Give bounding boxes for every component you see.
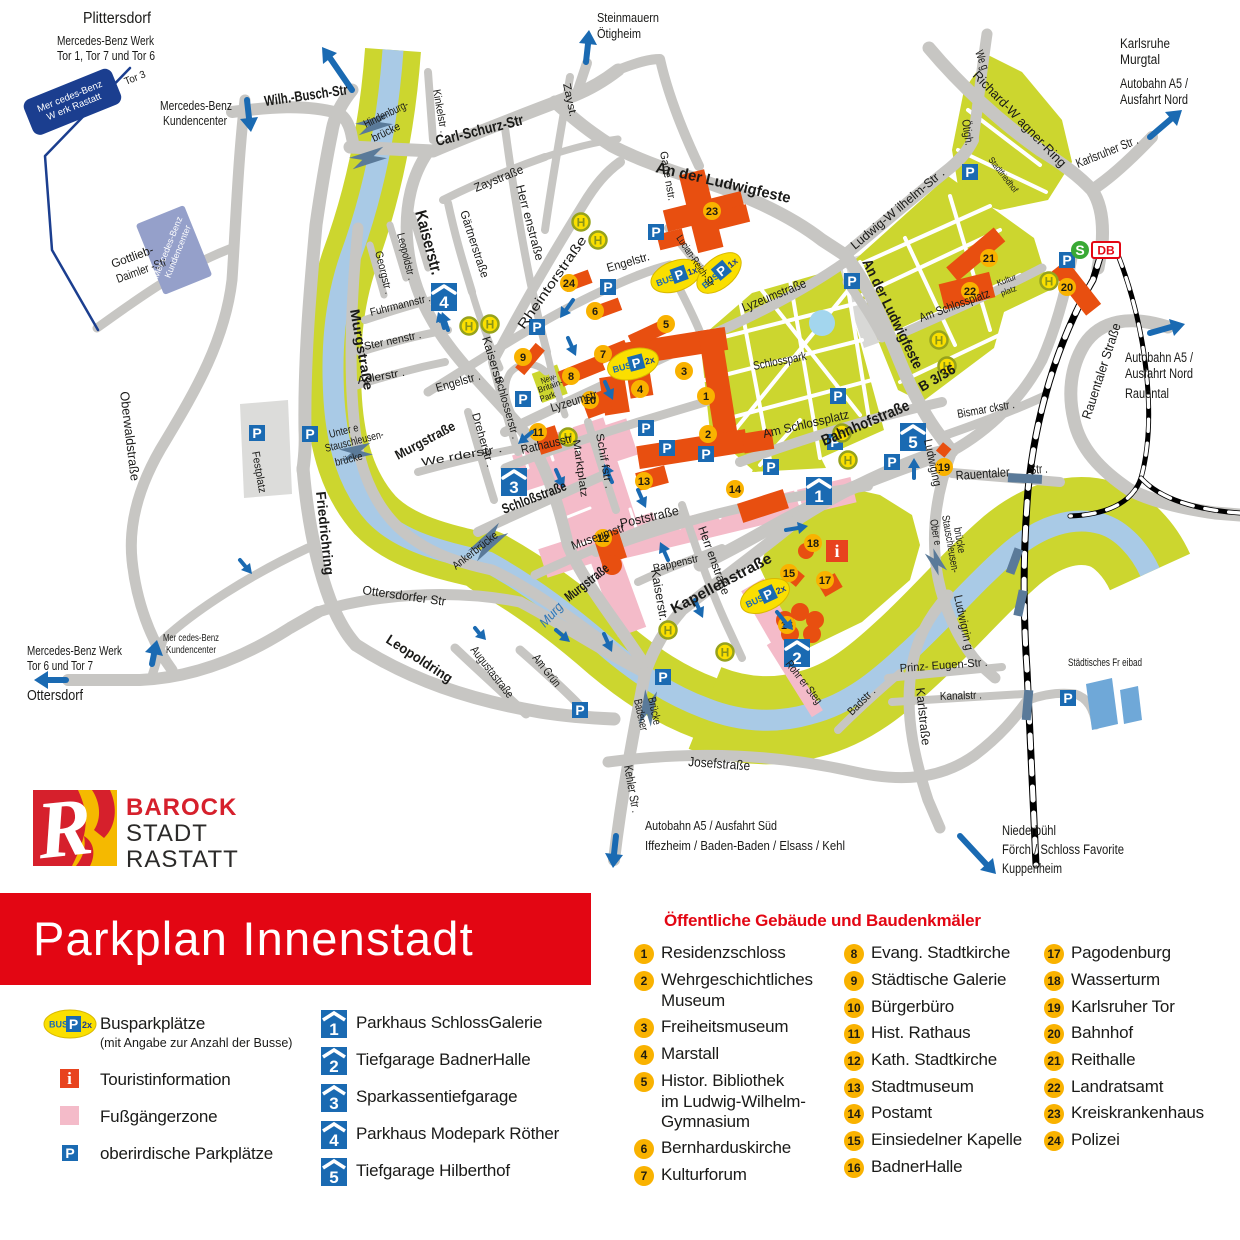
svg-text:Rappenstr: Rappenstr (652, 553, 700, 575)
svg-text:16: 16 (847, 1161, 861, 1175)
svg-text:Oberwaldstraße: Oberwaldstraße (117, 391, 143, 482)
svg-text:17: 17 (819, 575, 831, 587)
svg-text:Mercedes-Benz: Mercedes-Benz (160, 99, 232, 113)
svg-text:10: 10 (847, 1001, 861, 1015)
svg-text:P: P (1062, 252, 1071, 268)
svg-text:7: 7 (600, 349, 606, 361)
svg-text:S: S (1075, 242, 1084, 258)
svg-text:14: 14 (847, 1107, 861, 1121)
svg-text:20: 20 (1061, 282, 1073, 294)
svg-text:H: H (1045, 275, 1054, 289)
svg-text:9: 9 (851, 974, 858, 988)
svg-text:Karlsruhe: Karlsruhe (1120, 36, 1170, 51)
svg-text:3: 3 (641, 1021, 648, 1035)
svg-text:P: P (662, 440, 671, 456)
svg-text:5: 5 (908, 433, 917, 452)
svg-text:BUS: BUS (49, 1020, 68, 1030)
svg-text:3: 3 (681, 366, 687, 378)
svg-text:Iffezheim / Baden-Baden / Elsa: Iffezheim / Baden-Baden / Elsass / Kehl (645, 838, 845, 853)
svg-text:Ausfahrt Nord: Ausfahrt Nord (1125, 366, 1193, 381)
svg-text:P: P (305, 426, 314, 442)
svg-text:H: H (577, 216, 586, 230)
svg-text:6: 6 (641, 1142, 648, 1156)
svg-text:Mercedes-Benz Werk: Mercedes-Benz Werk (27, 644, 123, 658)
svg-text:Josefstraße: Josefstraße (688, 754, 751, 773)
svg-text:21: 21 (1047, 1054, 1061, 1068)
svg-text:Kundencenter: Kundencenter (166, 644, 216, 656)
svg-text:H: H (664, 624, 673, 638)
svg-text:Am Grün: Am Grün (530, 651, 564, 690)
svg-text:Autobahn A5 /: Autobahn A5 / (1120, 76, 1188, 91)
svg-text:4: 4 (439, 293, 449, 312)
svg-text:Rauental: Rauental (1125, 386, 1169, 401)
svg-text:P: P (965, 164, 974, 180)
svg-text:21: 21 (983, 253, 995, 265)
svg-text:DB: DB (1097, 244, 1115, 258)
svg-text:1: 1 (641, 947, 648, 961)
svg-text:Tor 6 und Tor 7: Tor 6 und Tor 7 (27, 659, 93, 673)
svg-text:4: 4 (641, 1048, 648, 1062)
svg-text:P: P (641, 420, 650, 436)
svg-text:Steinmauern: Steinmauern (597, 10, 659, 25)
svg-text:7: 7 (641, 1169, 648, 1183)
svg-text:15: 15 (847, 1134, 861, 1148)
svg-text:H: H (486, 318, 495, 332)
svg-text:Plittersdorf: Plittersdorf (83, 10, 152, 27)
svg-text:Murgtal: Murgtal (1120, 52, 1160, 67)
svg-text:P: P (833, 388, 842, 404)
svg-text:Kuppenheim: Kuppenheim (1002, 861, 1062, 876)
svg-text:20: 20 (1047, 1027, 1061, 1041)
svg-text:H: H (844, 454, 853, 468)
svg-text:1: 1 (703, 391, 709, 403)
svg-text:Ottersdorfer Str: Ottersdorfer Str (362, 583, 447, 609)
svg-text:1: 1 (814, 487, 823, 506)
svg-text:2: 2 (641, 974, 648, 988)
svg-text:13: 13 (638, 476, 650, 488)
svg-text:P: P (603, 279, 612, 295)
svg-text:P: P (69, 1016, 78, 1032)
svg-text:18: 18 (1047, 974, 1061, 988)
svg-text:Städtisches Fr eibad: Städtisches Fr eibad (1068, 657, 1142, 669)
svg-text:24: 24 (1047, 1134, 1061, 1148)
svg-text:14: 14 (729, 484, 742, 496)
svg-text:P: P (887, 454, 896, 470)
svg-text:Niederbühl: Niederbühl (1002, 823, 1056, 838)
svg-text:2: 2 (705, 429, 711, 441)
svg-text:23: 23 (1047, 1107, 1061, 1121)
svg-text:23: 23 (706, 206, 718, 218)
svg-text:R: R (32, 786, 97, 870)
svg-text:Ottersdorf: Ottersdorf (27, 687, 84, 704)
svg-text:3: 3 (329, 1094, 338, 1112)
svg-text:H: H (594, 234, 603, 248)
svg-text:6: 6 (592, 306, 598, 318)
svg-text:P: P (658, 669, 667, 685)
svg-text:9: 9 (520, 352, 526, 364)
svg-text:P: P (532, 319, 541, 335)
svg-text:P: P (252, 425, 261, 441)
svg-text:4: 4 (637, 384, 644, 396)
svg-text:Kundencenter: Kundencenter (163, 114, 227, 128)
svg-text:P: P (1063, 690, 1072, 706)
svg-text:P: P (575, 702, 584, 718)
svg-text:P: P (518, 391, 527, 407)
svg-text:Mer cedes-Benz: Mer cedes-Benz (163, 632, 219, 644)
svg-text:22: 22 (1047, 1081, 1061, 1095)
svg-text:Ausfahrt Nord: Ausfahrt Nord (1120, 92, 1188, 107)
svg-text:1: 1 (329, 1020, 338, 1038)
svg-text:15: 15 (783, 568, 795, 580)
svg-text:19: 19 (1047, 1001, 1061, 1015)
svg-text:Autobahn A5 / Ausfahrt Süd: Autobahn A5 / Ausfahrt Süd (645, 818, 777, 833)
svg-text:Str .: Str . (1029, 461, 1048, 477)
svg-text:Förch / Schloss Favorite: Förch / Schloss Favorite (1002, 842, 1124, 857)
svg-text:Kanalstr .: Kanalstr . (940, 690, 982, 703)
svg-text:P: P (766, 459, 775, 475)
svg-text:8: 8 (568, 371, 574, 383)
svg-text:17: 17 (1047, 947, 1061, 961)
svg-text:Mercedes-Benz Werk: Mercedes-Benz Werk (57, 34, 155, 48)
svg-text:12: 12 (847, 1054, 861, 1068)
svg-text:8: 8 (851, 947, 858, 961)
svg-text:Ötigheim: Ötigheim (597, 26, 641, 41)
svg-text:P: P (651, 224, 660, 240)
svg-text:24: 24 (563, 278, 576, 290)
svg-text:5: 5 (641, 1075, 648, 1089)
svg-text:Kaiserstr.: Kaiserstr. (648, 568, 671, 622)
svg-text:13: 13 (847, 1081, 861, 1095)
svg-text:2x: 2x (82, 1020, 92, 1030)
svg-text:18: 18 (807, 538, 819, 550)
svg-text:5: 5 (663, 319, 669, 331)
svg-text:P: P (701, 446, 710, 462)
svg-text:Ster nenstr .: Ster nenstr . (363, 329, 422, 353)
svg-text:H: H (935, 334, 944, 348)
svg-text:i: i (834, 541, 839, 561)
svg-text:P: P (847, 273, 856, 289)
svg-text:Tor 1, Tor 7 und Tor 6: Tor 1, Tor 7 und Tor 6 (57, 49, 155, 63)
svg-text:H: H (721, 646, 730, 660)
svg-text:11: 11 (848, 1027, 861, 1041)
svg-text:5: 5 (329, 1168, 338, 1186)
svg-text:4: 4 (329, 1131, 339, 1149)
svg-text:H: H (465, 320, 474, 334)
svg-text:Autobahn A5 /: Autobahn A5 / (1125, 350, 1193, 365)
svg-text:2: 2 (329, 1057, 338, 1075)
